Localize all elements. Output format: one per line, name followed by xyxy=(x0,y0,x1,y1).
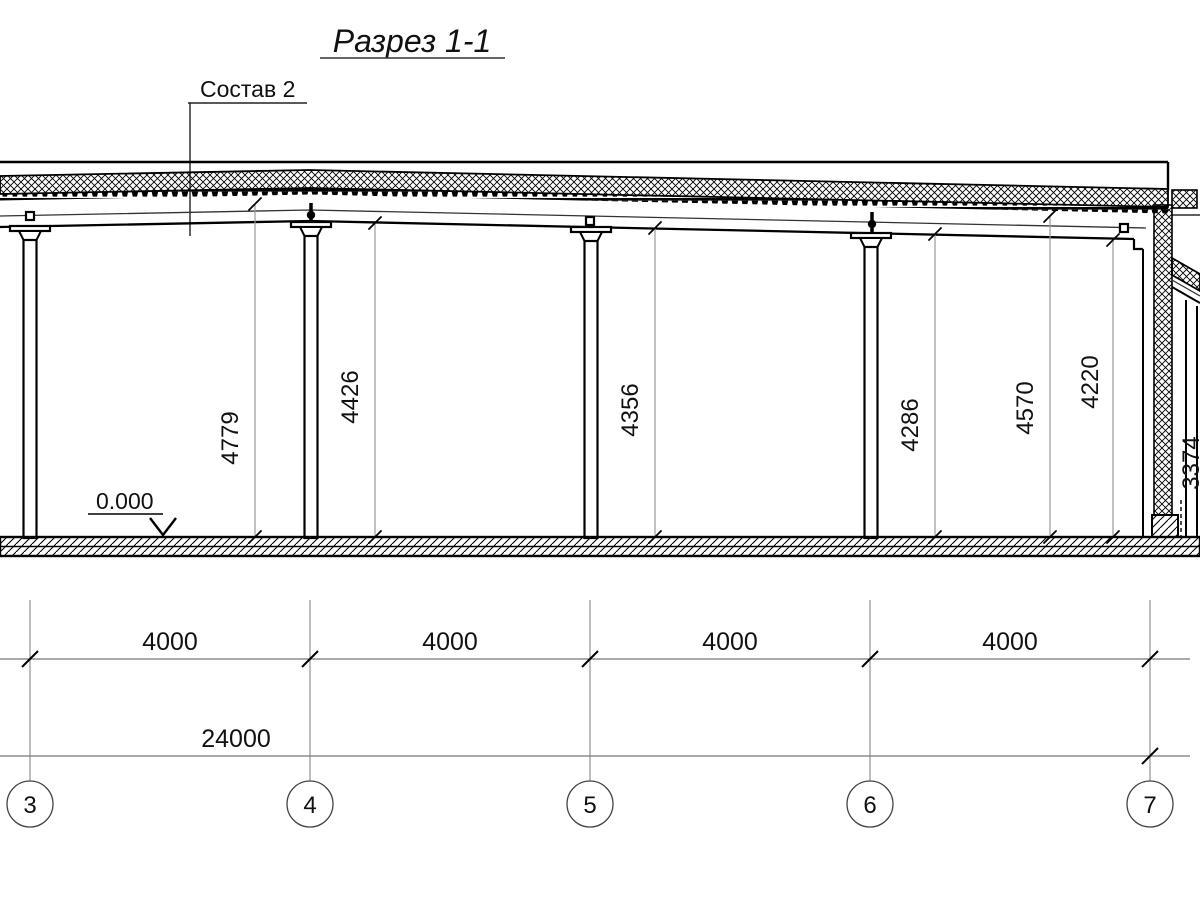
wall-base-pier xyxy=(1152,515,1178,537)
beam-joint-dot xyxy=(868,220,876,228)
column-shaft xyxy=(585,241,598,538)
height-dimension-label: 4426 xyxy=(337,370,364,423)
bay-dimension-label: 4000 xyxy=(982,628,1038,656)
page-title: Разрез 1-1 xyxy=(333,23,492,59)
wall-masonry-hatch xyxy=(1154,205,1172,515)
low-roof-insulation-band xyxy=(1172,258,1200,291)
section-drawing-sheet: Разрез 1-1 Состав 2 xyxy=(0,0,1200,900)
column-axis-4 xyxy=(291,222,331,538)
column-shaft xyxy=(24,240,37,538)
column-capital-taper xyxy=(19,231,41,240)
beam-bearing-step xyxy=(1134,239,1143,249)
grid-axis-label: 5 xyxy=(583,792,596,819)
height-dimension-label: 4570 xyxy=(1012,381,1039,434)
height-dimension-label: 4220 xyxy=(1077,355,1104,408)
column-capital-taper xyxy=(860,238,882,247)
level-mark-value: 0.000 xyxy=(96,488,154,514)
height-dimension-label: 4356 xyxy=(617,383,644,436)
beam-joint-square xyxy=(586,217,594,225)
beam-joint-square xyxy=(1120,224,1128,232)
column-shaft xyxy=(305,236,318,538)
grid-axis-label: 4 xyxy=(303,792,316,819)
column-axis-5 xyxy=(571,227,611,538)
roof-composition-callout: Состав 2 xyxy=(200,76,295,102)
level-mark: 0.000 xyxy=(88,488,176,535)
adjacent-low-roof: 3374 xyxy=(1172,215,1200,537)
height-dimensions: 4779 4426 4356 4286 4570 4220 xyxy=(217,198,1119,543)
level-mark-arrow xyxy=(150,518,176,535)
grid-axis-label: 6 xyxy=(863,792,876,819)
dimension-row-bays: 4000 4000 4000 4000 xyxy=(0,628,1190,667)
grid-axis-bubbles: 3 4 5 6 7 xyxy=(7,781,1173,827)
column-capital-taper xyxy=(300,227,322,236)
beam-joint-square xyxy=(26,212,34,220)
column-axis-3 xyxy=(10,226,50,538)
bay-dimension-label: 4000 xyxy=(702,628,758,656)
bay-dimension-label: 4000 xyxy=(142,628,198,656)
grid-axis-label: 3 xyxy=(23,792,36,819)
height-dimension-partial: 3374 xyxy=(1178,436,1200,489)
column-axis-6 xyxy=(851,233,891,538)
beam-joint-dot xyxy=(307,211,315,219)
height-dimension-label: 4779 xyxy=(217,411,244,464)
total-dimension-label: 24000 xyxy=(201,725,271,753)
grid-axis-label: 7 xyxy=(1143,792,1156,819)
column-shaft xyxy=(865,247,878,538)
roof-beam-upper-line xyxy=(0,210,1146,228)
floor-slab xyxy=(0,537,1200,556)
section-drawing: Разрез 1-1 Состав 2 xyxy=(0,0,1200,900)
height-dimension-label: 4286 xyxy=(897,398,924,451)
bay-dimension-label: 4000 xyxy=(422,628,478,656)
dimension-row-total: 24000 xyxy=(0,725,1190,764)
wall-top-hatch-block xyxy=(1172,190,1197,208)
column-capital-taper xyxy=(580,232,602,241)
roof-insulation-band xyxy=(0,170,1168,207)
